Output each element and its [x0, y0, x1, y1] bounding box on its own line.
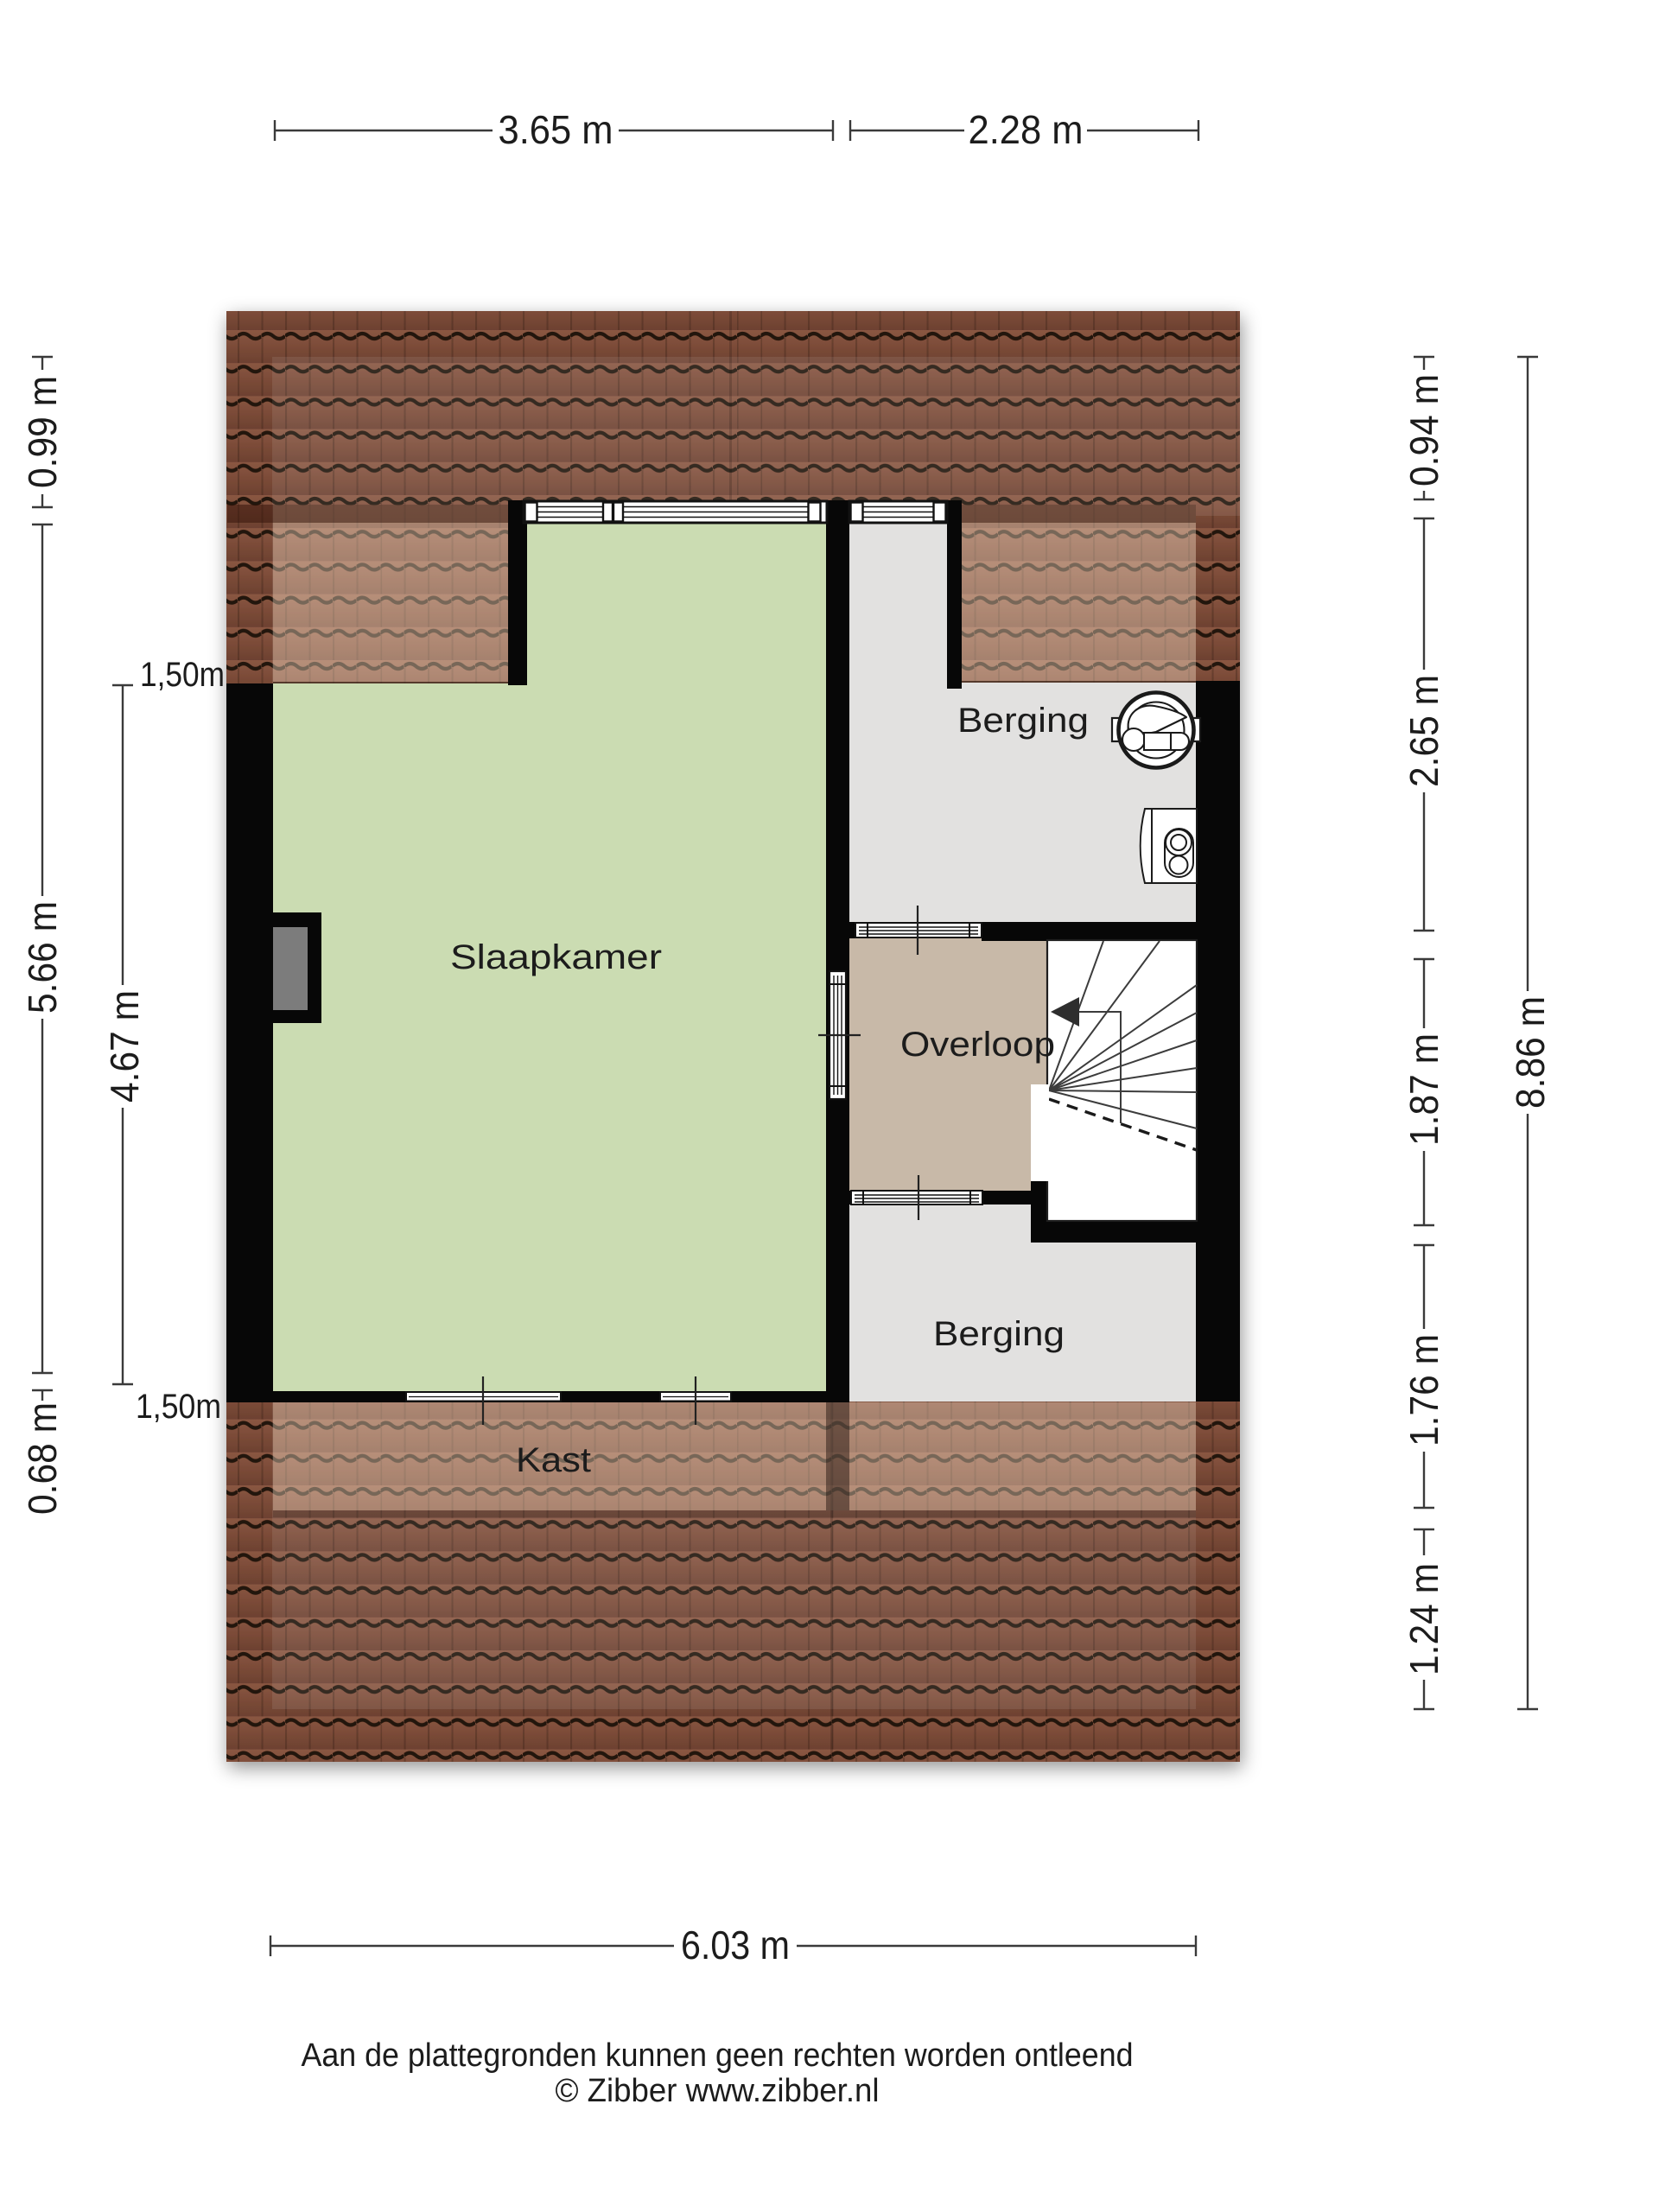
svg-text:Overloop: Overloop: [900, 1026, 1055, 1064]
svg-text:Kast: Kast: [516, 1441, 591, 1479]
svg-text:6.03 m: 6.03 m: [681, 1923, 790, 1967]
svg-text:0.94 m: 0.94 m: [1402, 374, 1446, 486]
svg-text:Berging: Berging: [933, 1315, 1065, 1353]
svg-text:1,50m: 1,50m: [136, 1388, 221, 1426]
svg-text:1.87 m: 1.87 m: [1402, 1033, 1446, 1146]
svg-text:0.68 m: 0.68 m: [20, 1402, 65, 1515]
svg-text:1.24 m: 1.24 m: [1402, 1563, 1446, 1675]
svg-text:© Zibber www.zibber.nl: © Zibber www.zibber.nl: [556, 2073, 880, 2109]
svg-text:3.65 m: 3.65 m: [499, 107, 613, 152]
svg-text:Slaapkamer: Slaapkamer: [450, 938, 662, 976]
svg-text:Aan de plattegronden kunnen ge: Aan de plattegronden kunnen geen rechten…: [302, 2037, 1134, 2074]
svg-text:0.99 m: 0.99 m: [20, 376, 65, 488]
svg-text:2.28 m: 2.28 m: [969, 107, 1084, 152]
svg-text:Berging: Berging: [957, 702, 1089, 740]
svg-text:5.66 m: 5.66 m: [20, 901, 65, 1014]
svg-text:1,50m: 1,50m: [140, 656, 225, 694]
svg-text:8.86 m: 8.86 m: [1508, 996, 1553, 1109]
svg-text:2.65 m: 2.65 m: [1402, 675, 1446, 787]
svg-text:4.67 m: 4.67 m: [102, 990, 147, 1103]
svg-text:1.76 m: 1.76 m: [1402, 1334, 1446, 1446]
